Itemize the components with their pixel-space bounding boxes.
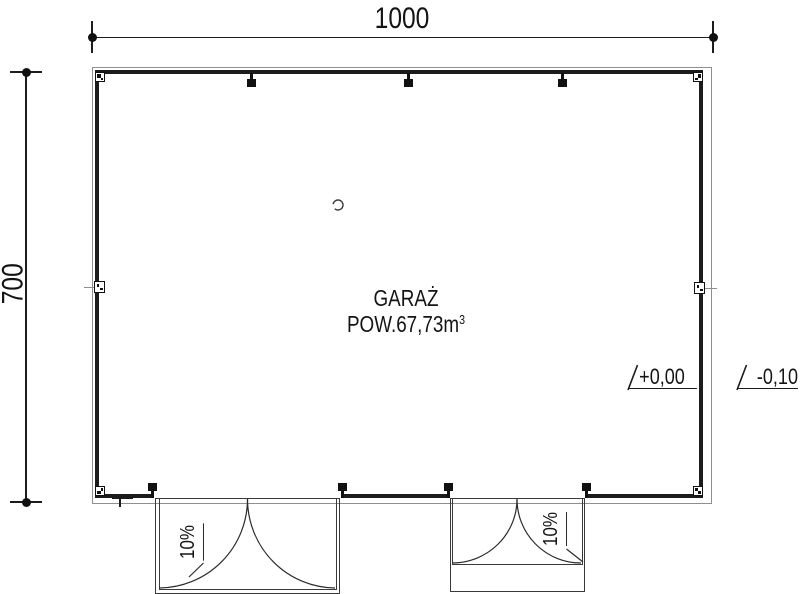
level-marker-outside: -0,10 <box>747 365 798 388</box>
slope-label-left: 10% <box>178 523 204 560</box>
room-name-label: GARAŻ <box>324 286 488 310</box>
floor-plan-drawing: 1000 700 <box>0 0 800 594</box>
slope-leader-left <box>189 563 204 577</box>
volume-superscript: 3 <box>459 312 465 327</box>
door-swing-arc <box>248 499 336 588</box>
slope-leader-right <box>567 549 584 562</box>
level-marker-inside: +0,00 <box>633 365 690 388</box>
slope-label-right: 10% <box>541 512 567 546</box>
door-swing-arc <box>452 499 517 563</box>
volume-value: POW.67,73m <box>347 311 459 337</box>
level-mark-tick <box>737 365 747 390</box>
level-underline-outside <box>737 388 798 389</box>
level-underline-inside <box>629 388 697 389</box>
drain-circle <box>332 199 344 211</box>
room-volume-label: POW.67,73m3 <box>324 312 488 336</box>
